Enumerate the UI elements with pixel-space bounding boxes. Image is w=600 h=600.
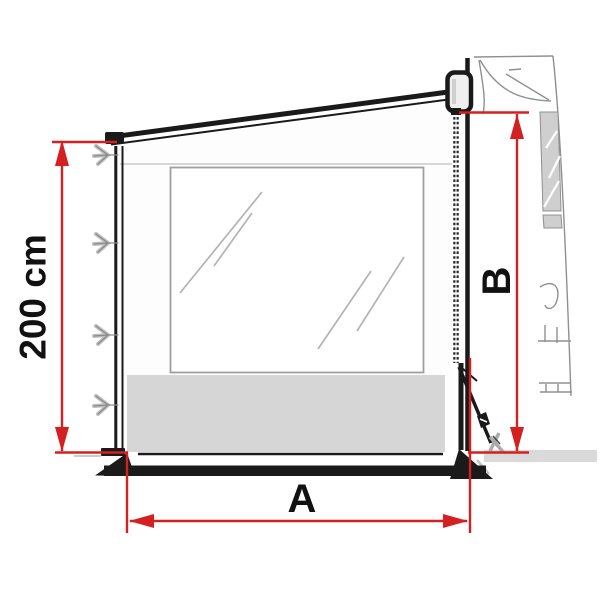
dim-arrow-left xyxy=(129,514,154,528)
vehicle-vent-lines xyxy=(539,383,572,392)
cassette-inner-stripe xyxy=(452,79,456,104)
dim-arrow-down xyxy=(55,427,69,452)
dimension-label-a: A xyxy=(288,479,317,519)
dim-arrow-down xyxy=(510,427,524,452)
dimension-label-b: B xyxy=(477,267,517,296)
dimension-label-200cm: 200 cm xyxy=(15,234,52,360)
cassette-body xyxy=(448,73,472,112)
vehicle-window-lower-strip xyxy=(543,215,562,228)
vehicle-trim-curve xyxy=(540,284,558,309)
dim-arrow-up xyxy=(55,140,69,166)
panel-skirt xyxy=(127,375,445,452)
diagram-canvas: 200 cm B A xyxy=(0,0,600,600)
dim-arrow-right xyxy=(443,514,468,528)
vehicle-sketch xyxy=(474,56,572,396)
dim-arrow-up xyxy=(510,114,524,139)
awning-fabric-curve-1 xyxy=(479,60,484,114)
vehicle-detail-dash xyxy=(509,69,521,70)
ground-bar-body xyxy=(104,466,486,477)
panel-window xyxy=(171,168,424,373)
vehicle-trim-ticks xyxy=(538,325,571,343)
awning-cassette xyxy=(448,73,472,116)
vehicle-roof-line xyxy=(474,56,553,57)
awning-fabric-line xyxy=(506,74,549,100)
